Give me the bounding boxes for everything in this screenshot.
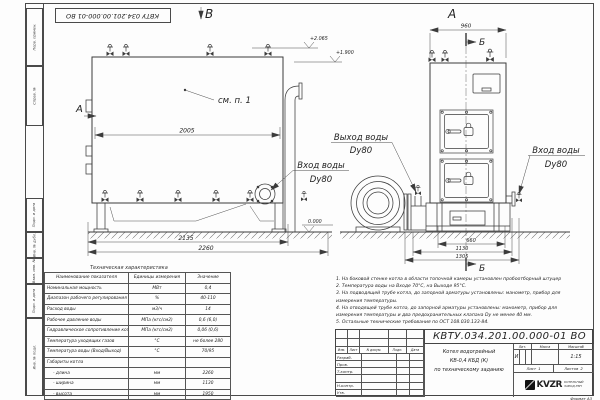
role-cell <box>397 354 410 361</box>
front-view <box>340 49 570 238</box>
inlet-front-label: Вход воды <box>532 146 580 156</box>
sheet-label: Лист <box>526 366 536 371</box>
roof-valves <box>107 44 272 56</box>
dim-side-inner-width: 2005 <box>179 128 194 135</box>
company-logo-area: KVZR КОТЕЛЬНЫЙ ЗАВОД РЭП <box>514 373 594 396</box>
product-line: КВ-0,4 КБД (К) <box>450 358 488 364</box>
note-line: 1. На боковой стенке котла в области топ… <box>336 276 593 283</box>
spec-cell: 0,6 (6,0) <box>186 315 231 326</box>
rev-cell <box>336 339 348 348</box>
rev-cell <box>389 330 407 339</box>
revision-grid <box>336 330 424 347</box>
dim-front-660: 660 <box>466 238 476 244</box>
inlet-front-size: Dy80 <box>545 160 567 170</box>
spec-row: Гидравлическое сопротивление котлаМПа (к… <box>45 325 231 336</box>
control-panel <box>473 74 500 93</box>
spec-row: Диапазон рабочего регулирования%40-110 <box>45 294 231 305</box>
spec-cell: 1130 <box>186 378 231 389</box>
technical-notes: 1. На боковой стенке котла в области топ… <box>336 276 593 326</box>
role-cell <box>410 383 424 390</box>
scale-value: 1:15 <box>559 350 594 365</box>
rev-cell <box>407 339 424 348</box>
role-cell <box>397 361 410 368</box>
see-item-callout <box>184 89 214 100</box>
note-line: 4. На отводящей трубе котла, до запорной… <box>336 305 593 312</box>
rev-cell <box>348 339 360 348</box>
rev-cell <box>336 330 348 339</box>
spec-cell: 70/95 <box>186 347 231 358</box>
sheet-value: 1 <box>538 366 540 371</box>
spec-header-row: Наименование показателя Единицы измерени… <box>45 273 231 284</box>
view-label-side: В <box>205 7 213 21</box>
doc-number: КВТУ.034.201.00.000-01 ВО <box>424 330 594 344</box>
spec-cell: - длина <box>45 368 129 379</box>
lower-furnace-door <box>440 159 493 202</box>
role-cell <box>397 383 410 390</box>
product-line: по техническому заданию <box>434 367 504 373</box>
spec-cell: Расход воды <box>45 304 129 315</box>
elevation-2065: +2.065 <box>310 36 328 42</box>
spec-row: Температура воды (Вход/Выход)°С70/95 <box>45 347 231 358</box>
section-label-bottom: Б <box>479 264 485 274</box>
spec-header-unit: Единицы измерения <box>129 273 186 284</box>
spec-cell: - высота <box>45 389 129 400</box>
company-name: КОТЕЛЬНЫЙ ЗАВОД РЭП <box>564 381 584 388</box>
outlet-size: Dy80 <box>350 146 372 156</box>
ground-hatch-side <box>88 233 332 239</box>
note-line: измерения температуры. <box>336 298 593 305</box>
inlet-stub <box>506 192 522 206</box>
note-line: 2. Температура воды на Входе 70°С, на Вы… <box>336 283 593 290</box>
spec-cell <box>186 357 231 368</box>
note-line: измерения температуры и два предохраните… <box>336 312 593 319</box>
role-label <box>336 375 362 382</box>
spec-cell <box>129 357 186 368</box>
spec-cell: мм <box>129 389 186 400</box>
spec-cell: Гидравлическое сопротивление котла <box>45 325 129 336</box>
spec-cell: Номинальная мощность <box>45 283 129 294</box>
role-cell <box>410 368 424 375</box>
upper-furnace-door <box>440 110 493 153</box>
drain-valves <box>102 190 254 202</box>
dim-side-overall-width: 2260 <box>198 245 213 252</box>
spec-cell: 2260 <box>186 368 231 379</box>
spec-cell: Габариты котла <box>45 357 129 368</box>
role-cell <box>397 390 410 397</box>
sheets-value: 2 <box>580 366 582 371</box>
spec-cell: 1950 <box>186 389 231 400</box>
spec-cell: 40-110 <box>186 294 231 305</box>
sheet-row: Лист 1 Листов 2 <box>514 365 594 373</box>
side-view <box>86 44 332 238</box>
spec-cell: 0,06 (0,6) <box>186 325 231 336</box>
base-frame <box>426 203 510 231</box>
support-legs <box>94 203 286 232</box>
note-line: 5. Остальные технические требования по О… <box>336 319 593 326</box>
spec-cell: МПа (кгс/см2) <box>129 315 186 326</box>
signature-rows: Разраб. Пров. Т.контр. Н.контр. Утв. <box>336 354 424 397</box>
spec-row: Рабочее давление водыМПа (кгс/см2)0,6 (6… <box>45 315 231 326</box>
elevation-1900: +1.900 <box>336 50 354 56</box>
panel-slot <box>482 88 491 91</box>
dim-front-top-width: 960 <box>461 24 472 30</box>
rev-header: Изм. <box>336 347 348 354</box>
front-roof-valves <box>429 49 494 62</box>
spec-row: Расход водым3/ч14 <box>45 304 231 315</box>
role-cell <box>362 383 397 390</box>
rev-cell <box>360 339 389 348</box>
role-label: Утв. <box>336 390 362 397</box>
role-label: Н.контр. <box>336 383 362 390</box>
inlet-side-size: Dy80 <box>310 175 332 185</box>
rev-cell <box>348 330 360 339</box>
spec-cell: Температура уходящих газов <box>45 336 129 347</box>
role-label: Т.контр. <box>336 368 362 375</box>
inlet-side-label: Вход воды <box>297 161 345 171</box>
sheet-cell: Лист 1 <box>514 365 554 373</box>
elevation-zero: 0.000 <box>308 219 322 225</box>
flue-pipe <box>285 83 307 232</box>
spec-cell: Температура воды (Вход/Выход) <box>45 347 129 358</box>
spec-cell: °С <box>129 336 186 347</box>
rev-cell <box>407 330 424 339</box>
spec-cell: не более 280 <box>186 336 231 347</box>
title-block-right: Лит. Масса Масштаб И 1:15 Лист 1 Листов … <box>513 344 594 397</box>
dimensions <box>88 30 519 264</box>
ground-hatch-front <box>340 233 570 239</box>
role-cell <box>362 375 397 382</box>
dim-front-1130: 1130 <box>456 246 469 252</box>
spec-row: - ширинамм1130 <box>45 378 231 389</box>
product-name: Котел водогрейный КВ-0,4 КБД (К) по техн… <box>424 344 513 397</box>
role-label: Разраб. <box>336 354 362 361</box>
role-cell <box>410 361 424 368</box>
spec-cell: 14 <box>186 304 231 315</box>
role-label: Пров. <box>336 361 362 368</box>
role-cell <box>410 354 424 361</box>
spec-cell: % <box>129 294 186 305</box>
dim-side-base-width: 2135 <box>178 235 193 242</box>
role-cell <box>362 368 397 375</box>
spec-cell: Диапазон рабочего регулирования <box>45 294 129 305</box>
spec-cell: °С <box>129 347 186 358</box>
rev-header: N докум. <box>360 347 389 354</box>
spec-row: Габариты котла <box>45 357 231 368</box>
rev-header: Подп. <box>389 347 407 354</box>
spec-row: - длинамм2260 <box>45 368 231 379</box>
spec-table-title: Техническая характеристика <box>90 265 168 271</box>
sheets-cell: Листов 2 <box>554 365 594 373</box>
spec-header-name: Наименование показателя <box>45 273 129 284</box>
blower-fan <box>351 176 426 232</box>
section-label-top: Б <box>479 38 485 48</box>
sheets-label: Листов <box>564 366 578 371</box>
revision-header-row: Изм. Лист N докум. Подп. Дата <box>336 347 424 354</box>
role-cell <box>410 375 424 382</box>
outlet-valve <box>415 185 421 195</box>
spec-cell: мм <box>129 378 186 389</box>
company-line: ЗАВОД РЭП <box>564 385 584 388</box>
spec-row: - высотамм1950 <box>45 389 231 400</box>
spec-cell: Рабочее давление воды <box>45 315 129 326</box>
rev-header: Лист <box>348 347 360 354</box>
spec-cell: - ширина <box>45 378 129 389</box>
see-item-text: см. п. 1 <box>218 96 251 106</box>
outlet-label: Выход воды <box>334 133 388 143</box>
spec-cell: МВт <box>129 283 186 294</box>
spec-cell: м3/ч <box>129 304 186 315</box>
spec-row: Температура уходящих газов°Сне более 280 <box>45 336 231 347</box>
role-cell <box>397 375 410 382</box>
role-cell <box>362 354 397 361</box>
role-cell <box>362 361 397 368</box>
rev-header: Дата <box>407 347 424 354</box>
format-note: Формат А3 <box>536 396 592 400</box>
kvzr-logo-icon <box>525 380 535 390</box>
view-label-front: А <box>447 7 456 21</box>
spec-cell: мм <box>129 368 186 379</box>
inlet-flange <box>255 184 275 204</box>
spec-row: Номинальная мощностьМВт0,4 <box>45 283 231 294</box>
note-line: 3. На подводящей трубе котла, до запорно… <box>336 290 593 297</box>
role-cell <box>362 390 397 397</box>
spec-cell: МПа (кгс/см2) <box>129 325 186 336</box>
spec-cell: 0,4 <box>186 283 231 294</box>
product-line: Котел водогрейный <box>443 349 496 355</box>
cut-mark-left: А <box>75 104 83 115</box>
drawing-sheet: Перв. примен. Справ. № Подп. и дата Инв.… <box>0 0 600 400</box>
rev-cell <box>360 330 389 339</box>
spec-table: Наименование показателя Единицы измерени… <box>44 272 231 400</box>
role-cell <box>397 368 410 375</box>
role-cell <box>410 390 424 397</box>
mass-value <box>532 350 559 365</box>
rev-cell <box>389 339 407 348</box>
spec-header-value: Значение <box>186 273 231 284</box>
title-block: Изм. Лист N докум. Подп. Дата Разраб. Пр… <box>335 329 593 396</box>
kvzr-logo-text: KVZR <box>537 380 562 390</box>
lit-mass-scale-values: И 1:15 <box>514 350 594 365</box>
